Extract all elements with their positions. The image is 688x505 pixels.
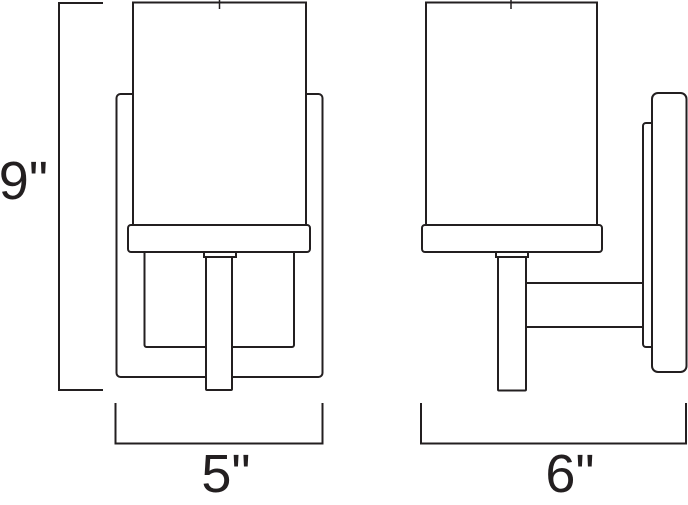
stem-side	[498, 253, 526, 391]
width-dimension-label: 5"	[201, 444, 250, 504]
depth-dimension-label: 6"	[545, 444, 594, 504]
shade-side	[426, 3, 597, 235]
shade-cap-front	[128, 225, 310, 252]
height-dimension-line	[59, 3, 103, 390]
height-dimension: 9"	[0, 3, 103, 390]
width-dimension-line	[116, 403, 323, 444]
sconce-dimension-diagram: 9" 5" 6"	[0, 0, 688, 505]
stem-front	[206, 253, 232, 391]
side-view	[422, 0, 687, 391]
height-dimension-label: 9"	[0, 151, 48, 211]
shade-cap-side	[422, 225, 602, 252]
depth-dimension: 6"	[421, 403, 686, 504]
depth-dimension-line	[421, 403, 686, 444]
diagram-drawing: 9" 5" 6"	[0, 0, 688, 505]
shade-front	[133, 3, 306, 235]
front-view	[117, 0, 323, 390]
width-dimension: 5"	[116, 403, 323, 504]
backplate-outer-side	[652, 93, 687, 372]
support-arm-side	[526, 283, 643, 327]
